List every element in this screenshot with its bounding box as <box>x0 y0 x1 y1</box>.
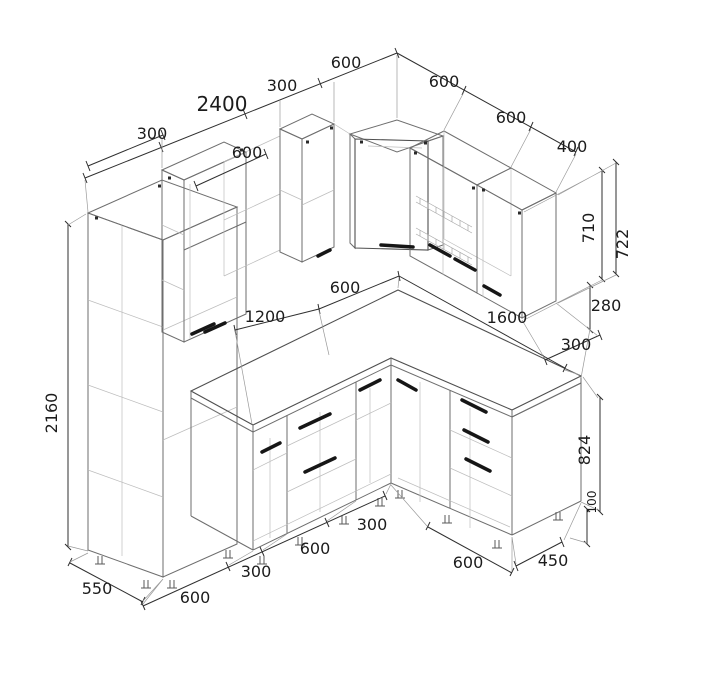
dim-line-base-chain <box>141 491 387 610</box>
dim-label-base-300-a: 300 <box>241 562 272 581</box>
dimension-labels: 300 2400 300 600 600 600 600 400 710 722… <box>42 53 632 607</box>
kitchen-technical-drawing-page: 300 2400 300 600 600 600 600 400 710 722… <box>0 0 706 697</box>
dim-label-right-600-b: 600 <box>496 108 527 127</box>
dim-label-right-400: 400 <box>557 137 588 156</box>
small-cab-front <box>302 124 334 262</box>
small-cab-gable <box>280 129 302 262</box>
dim-label-base-right-600: 600 <box>453 553 484 572</box>
dim-label-total-2400: 2400 <box>197 92 248 116</box>
dim-label-counter-600: 600 <box>330 278 361 297</box>
dim-label-wall-depth-300: 300 <box>561 335 592 354</box>
end-cab-handle <box>484 286 500 295</box>
tall-cab-gable <box>162 170 184 342</box>
dim-label-550: 550 <box>82 579 113 598</box>
dim-label-pantry-top-300: 300 <box>137 124 168 143</box>
dim-label-upper-300: 300 <box>267 76 298 95</box>
dim-line-710 <box>599 167 605 282</box>
corner-cab-left-wing <box>350 134 355 248</box>
small-cab-top <box>280 114 334 139</box>
small-cab-handle <box>318 250 330 256</box>
dim-label-wallcab-600: 600 <box>232 143 263 162</box>
countertop-thickness <box>191 358 581 432</box>
dim-label-1600: 1600 <box>487 308 528 327</box>
base-cabinets-right-run <box>391 382 581 535</box>
dim-label-710: 710 <box>579 213 598 244</box>
dim-label-base-right-450: 450 <box>538 551 569 570</box>
dim-label-base-300-b: 300 <box>357 515 388 534</box>
dim-label-base-600-a: 600 <box>180 588 211 607</box>
tall-cab-shelves <box>162 184 190 339</box>
end-cab-gable <box>522 193 556 318</box>
dim-label-2160: 2160 <box>42 393 61 434</box>
base-right-drawer-lines <box>398 382 512 528</box>
corner-cab-handle <box>381 245 413 247</box>
dim-label-824: 824 <box>575 435 594 466</box>
dim-label-upper-600: 600 <box>331 53 362 72</box>
small-cab-shelves <box>280 190 334 205</box>
end-wall-cabinet <box>477 168 556 318</box>
end-cab-top <box>477 168 556 210</box>
end-cab-front <box>477 185 522 318</box>
pantry-gable-face <box>88 213 163 577</box>
drainer-cab-top <box>410 131 511 185</box>
dim-label-right-600-a: 600 <box>429 72 460 91</box>
small-wall-cabinet <box>280 114 334 262</box>
dim-label-722: 722 <box>613 229 632 260</box>
dim-label-280: 280 <box>591 296 622 315</box>
corner-cab-door <box>355 139 428 250</box>
drainer-wall-cabinet <box>410 131 511 293</box>
dim-line-2160 <box>65 221 71 550</box>
base-left-handles <box>262 380 380 472</box>
dim-label-base-600-b: 600 <box>300 539 331 558</box>
dim-label-100: 100 <box>585 491 599 514</box>
corner-cab-right-wing <box>428 136 443 250</box>
dim-label-1200: 1200 <box>245 307 286 326</box>
kitchen-corner-drawing: 300 2400 300 600 600 600 600 400 710 722… <box>0 0 706 697</box>
base-right-handles <box>398 380 490 471</box>
